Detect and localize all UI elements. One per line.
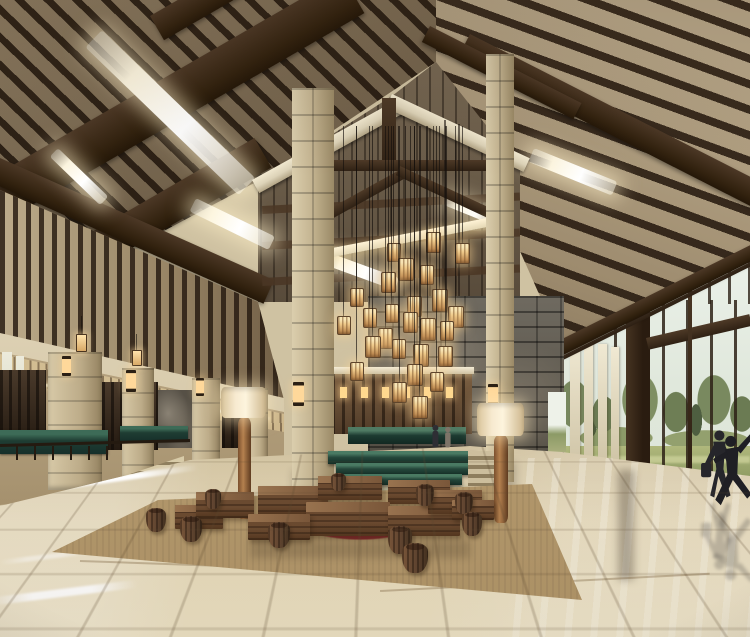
barrel-stool [146, 508, 166, 532]
lantern-pendant [407, 364, 423, 386]
barrel-stool [416, 484, 434, 506]
lantern-pendant [337, 316, 351, 335]
wall-sconce [293, 382, 304, 406]
barrel-stool [402, 543, 428, 573]
railing-posts [16, 446, 120, 460]
lantern-cable [410, 126, 411, 312]
lantern-cable [436, 126, 437, 372]
lantern-pendant [430, 372, 444, 392]
lantern-cable [455, 126, 456, 306]
lantern-cable [405, 126, 406, 258]
lantern-pendant [420, 318, 436, 341]
wall-sconce [196, 378, 204, 396]
lantern-cable [420, 126, 421, 344]
barrel-stool [455, 492, 473, 514]
reception-niche [340, 387, 347, 398]
lantern-pendant [440, 321, 454, 341]
barrel-stool-lid [271, 523, 286, 528]
barrel-stool-lid [458, 493, 471, 497]
window-fin [598, 344, 607, 465]
lantern-cable [372, 126, 373, 336]
floor-lamp-shade [477, 403, 524, 436]
lantern-cable [399, 126, 400, 382]
stone-column-left [292, 88, 334, 486]
stone-pier [48, 352, 102, 490]
lantern-pendant [350, 288, 364, 307]
barrel-stool-lid [392, 527, 409, 532]
barrel-stool-lid [183, 517, 198, 522]
lantern-pendant [398, 258, 414, 281]
lantern-pendant [363, 308, 377, 328]
lantern-cable [445, 126, 446, 346]
side-window [548, 392, 566, 452]
pendant-cord [136, 334, 137, 350]
water-feature-steps [468, 451, 494, 486]
barrel-stool-lid [406, 544, 424, 549]
lantern-pendant [365, 336, 381, 358]
lantern-cable [446, 126, 447, 321]
lantern-cable [385, 126, 386, 328]
lantern-pendant [381, 272, 396, 293]
lantern-pendant [455, 243, 470, 264]
lantern-pendant [392, 382, 407, 403]
barrel-stool-lid [465, 513, 479, 517]
barrel-stool-lid [207, 490, 218, 494]
barrel-stool [268, 522, 290, 548]
hotel-lobby-rendering [0, 0, 750, 637]
lantern-cable [427, 126, 428, 318]
floor-lamp-shade [221, 387, 266, 418]
barrel-stool [462, 512, 482, 536]
wood-bench-top [318, 476, 382, 483]
reception-niche [446, 387, 453, 398]
window-fin [611, 347, 619, 463]
barrel-stool-lid [419, 485, 432, 489]
barrel-stool [205, 489, 221, 509]
lantern-pendant [350, 362, 364, 381]
window-fin [584, 341, 593, 467]
lantern-cable [388, 126, 389, 272]
pendant-light [76, 334, 87, 352]
pendant-light [132, 350, 142, 366]
lantern-pendant [385, 304, 399, 323]
figure-reflection [712, 506, 750, 586]
lantern-cable [393, 126, 394, 243]
wood-bench [318, 476, 382, 500]
lantern-cable [391, 126, 392, 304]
lantern-cable [462, 126, 463, 243]
reception-niche [382, 387, 389, 398]
lantern-cable [439, 126, 440, 289]
wood-bench-top [306, 502, 390, 512]
barrel-stool-lid [149, 509, 163, 513]
lantern-pendant [412, 396, 428, 419]
figure-standing [441, 426, 455, 451]
lantern-cable [419, 126, 420, 396]
window-fin [570, 338, 580, 468]
lantern-pendant [403, 312, 418, 333]
lantern-cable [414, 126, 415, 364]
post-reflection [618, 470, 634, 580]
figure-arm-raised [712, 430, 750, 510]
barrel-stool [331, 473, 346, 491]
lantern-cable [369, 126, 370, 308]
reception-niche [361, 387, 368, 398]
wall-sconce [62, 356, 71, 376]
pendant-cord [81, 316, 82, 334]
barrel-stool [180, 516, 202, 542]
lantern-cable [433, 126, 434, 232]
barrel-stool-lid [333, 474, 344, 477]
lantern-cable [356, 126, 357, 362]
lantern-cable [343, 126, 344, 316]
wood-bench [306, 502, 390, 536]
wood-bench-top [248, 514, 310, 522]
wall-sconce [126, 370, 136, 392]
lantern-pendant [438, 346, 453, 367]
floor-lamp-base [494, 435, 508, 523]
